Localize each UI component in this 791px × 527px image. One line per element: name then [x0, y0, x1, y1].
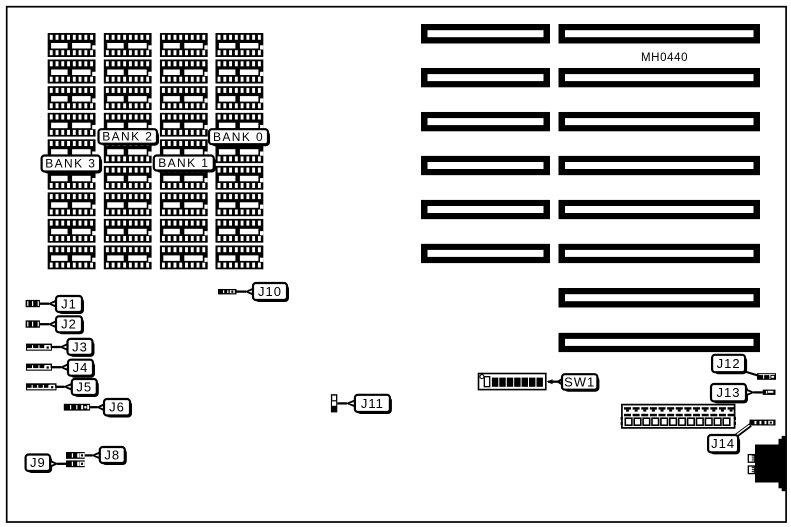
svg-text:BANK 0: BANK 0 [213, 130, 264, 144]
svg-text:J14: J14 [711, 436, 735, 451]
svg-text:J10: J10 [258, 284, 282, 299]
svg-text:SW1: SW1 [564, 374, 595, 389]
svg-text:J12: J12 [717, 356, 741, 371]
svg-text:J6: J6 [109, 400, 125, 415]
svg-text:J8: J8 [104, 447, 120, 462]
svg-text:J2: J2 [61, 317, 77, 332]
svg-text:J11: J11 [361, 396, 384, 411]
svg-text:MH0440: MH0440 [641, 52, 688, 64]
svg-text:BANK 3: BANK 3 [45, 157, 96, 171]
svg-text:J9: J9 [30, 455, 46, 470]
svg-text:J13: J13 [717, 385, 741, 400]
svg-text:J5: J5 [76, 379, 92, 394]
svg-text:BANK 1: BANK 1 [158, 156, 209, 170]
svg-text:J4: J4 [73, 360, 89, 375]
svg-text:J3: J3 [72, 339, 88, 354]
svg-text:BANK 2: BANK 2 [102, 130, 153, 144]
svg-text:J1: J1 [61, 296, 77, 311]
